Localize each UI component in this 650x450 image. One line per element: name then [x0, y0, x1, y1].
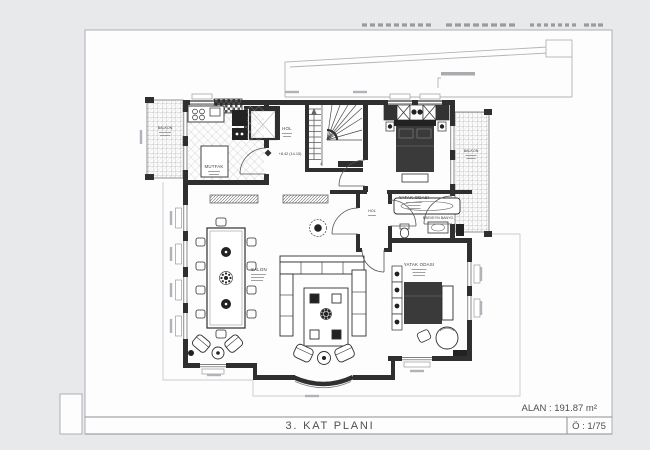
svg-text:+8.42 (14.15): +8.42 (14.15): [279, 152, 302, 156]
sheet-paper: [85, 30, 612, 434]
plan-title: 3. KAT PLANI: [285, 420, 374, 432]
svg-text:YATAK ODASI: YATAK ODASI: [399, 195, 430, 200]
radiator: [283, 195, 328, 203]
sofa-left: [280, 274, 293, 336]
oven: [232, 128, 247, 140]
bed-headboard: [394, 120, 436, 126]
floor-plan-svg: BALKON MUTFAK HOL +8.42 (14.15) 4 YATAK …: [0, 0, 650, 450]
drawing-sheet: [60, 25, 612, 434]
bed: [396, 126, 434, 172]
chimney: [546, 40, 572, 57]
vanity-table: [436, 327, 458, 349]
svg-text:BALKON: BALKON: [158, 126, 173, 130]
balcony-top-left: [145, 97, 183, 180]
bed-footboard: [442, 286, 453, 320]
svg-text:HOL: HOL: [282, 126, 292, 131]
sofa-back: [280, 256, 364, 262]
room-label-parent-bathroom: EBEVEYN BANYO: [423, 216, 454, 220]
coffee-table: [304, 288, 348, 346]
svg-text:YATAK ODASI: YATAK ODASI: [404, 262, 435, 267]
area-label: ALAN : 191.87 m²: [521, 403, 597, 414]
dresser: [453, 350, 467, 356]
bed: [404, 282, 442, 324]
kitchen-island: [201, 146, 228, 177]
scale-label: Ö : 1/75: [572, 421, 606, 432]
sofa-right: [352, 270, 366, 336]
balcony-right: [455, 109, 492, 237]
radiator: [210, 195, 258, 203]
title-block-left-box: [60, 394, 82, 434]
svg-text:HOL: HOL: [368, 209, 375, 213]
bathroom-cabinet: [456, 224, 464, 236]
fridge: [232, 110, 247, 126]
wardrobe-row: [384, 105, 449, 120]
kitchen: [188, 105, 264, 180]
stair-count-label: 4: [320, 162, 322, 166]
scanned-drawing-photo: BALKON MUTFAK HOL +8.42 (14.15) 4 YATAK …: [0, 0, 650, 450]
toilet: [400, 228, 408, 238]
closet-strip: [392, 266, 402, 330]
svg-text:BALKON: BALKON: [464, 149, 479, 153]
roof-annotation: [441, 72, 475, 76]
svg-text:MUTFAK: MUTFAK: [204, 164, 223, 169]
svg-text:SALON: SALON: [251, 267, 267, 272]
table-centerpiece: [220, 272, 233, 285]
bed-bench: [402, 174, 428, 182]
plant: [188, 350, 194, 356]
